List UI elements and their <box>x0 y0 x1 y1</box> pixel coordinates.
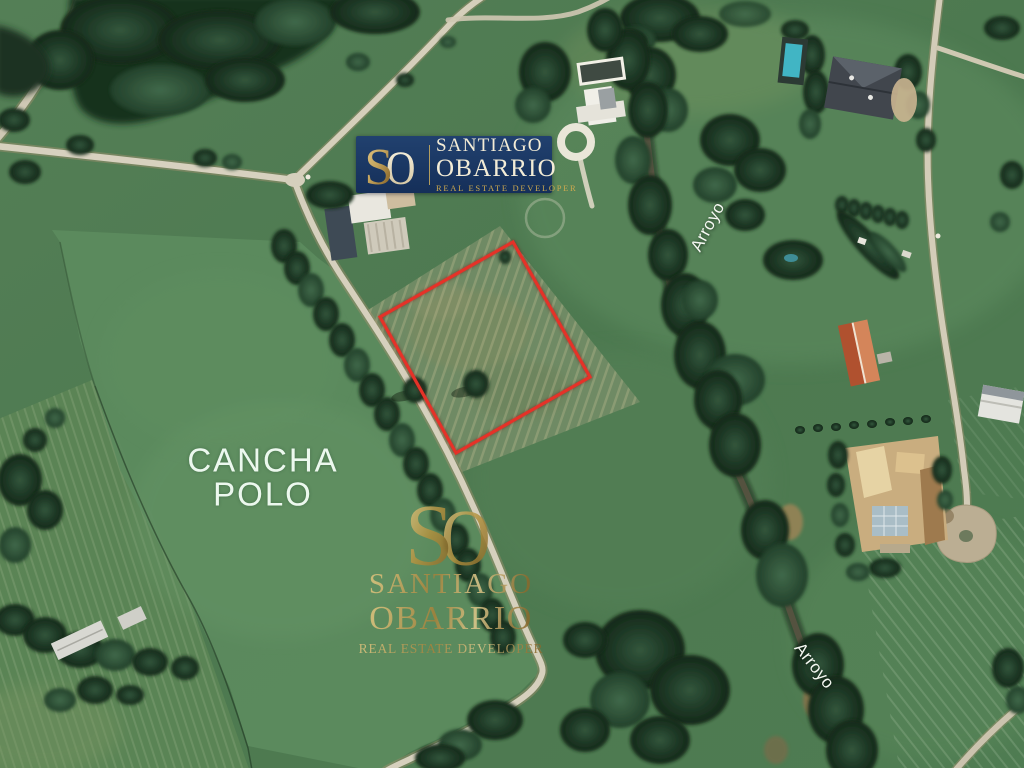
monogram-s: S <box>364 141 393 188</box>
polo-field-label-line2: POLO <box>187 477 338 511</box>
satellite-listing-image: O S SANTIAGO OBARRIO REAL ESTATE DEVELOP… <box>0 0 1024 768</box>
brand-name-line2: OBARRIO <box>436 156 545 181</box>
brand-logo: O S SANTIAGO OBARRIO REAL ESTATE DEVELOP… <box>356 136 552 193</box>
satellite-imagery <box>0 0 1024 768</box>
polo-field-label: CANCHA POLO <box>187 443 338 510</box>
brand-tagline: REAL ESTATE DEVELOPER <box>436 184 545 193</box>
logo-divider <box>429 145 430 185</box>
brand-name-line1: SANTIAGO <box>436 136 545 155</box>
brand-monogram-icon: O S <box>363 141 423 188</box>
polo-field-label-line1: CANCHA <box>187 443 338 477</box>
